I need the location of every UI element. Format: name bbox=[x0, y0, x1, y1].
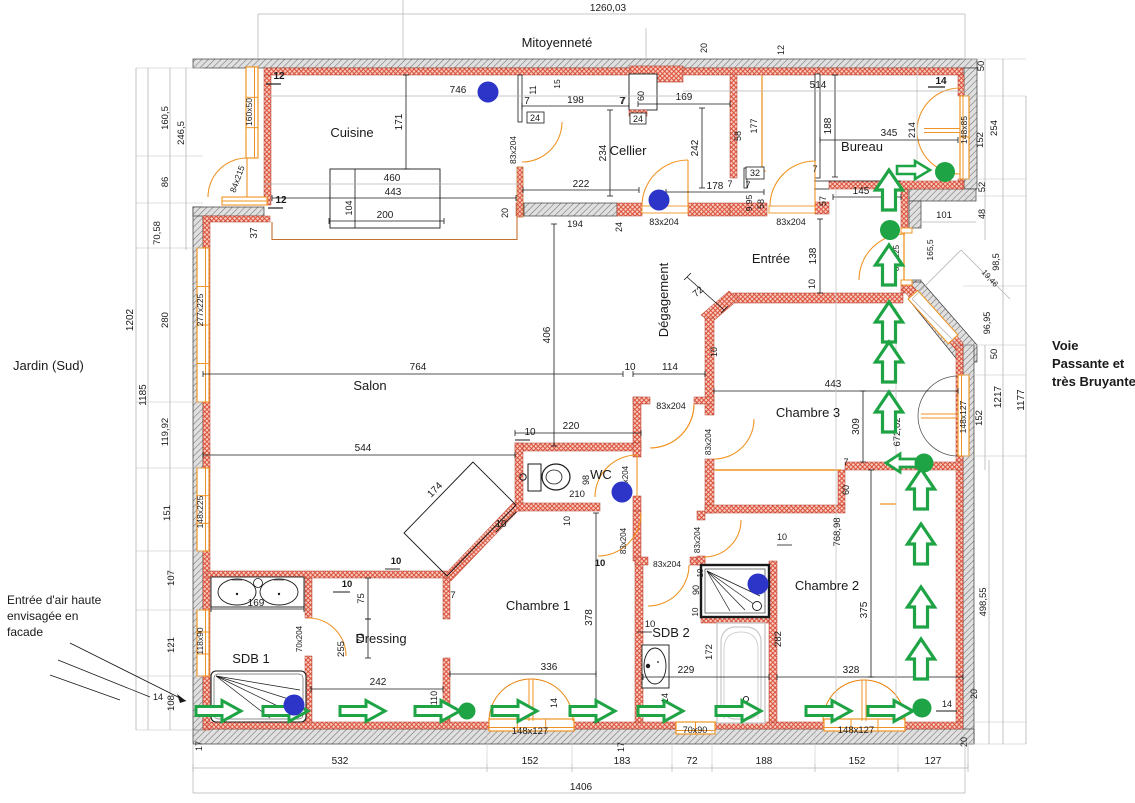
svg-text:7: 7 bbox=[619, 96, 625, 107]
svg-text:514: 514 bbox=[810, 80, 827, 91]
svg-text:90: 90 bbox=[691, 585, 701, 595]
svg-text:12: 12 bbox=[273, 71, 285, 82]
svg-text:282: 282 bbox=[773, 631, 784, 647]
svg-text:222: 222 bbox=[573, 179, 590, 190]
svg-text:20: 20 bbox=[500, 208, 510, 218]
svg-text:764: 764 bbox=[410, 362, 427, 373]
svg-text:10: 10 bbox=[807, 279, 817, 289]
svg-text:20: 20 bbox=[699, 43, 709, 53]
svg-text:148x225: 148x225 bbox=[195, 495, 205, 528]
svg-text:200: 200 bbox=[377, 210, 394, 221]
svg-text:177: 177 bbox=[749, 118, 759, 133]
svg-text:72: 72 bbox=[686, 756, 698, 767]
svg-text:Chambre 3: Chambre 3 bbox=[776, 405, 840, 420]
svg-text:309: 309 bbox=[851, 418, 862, 435]
svg-text:50: 50 bbox=[976, 61, 987, 72]
svg-text:152: 152 bbox=[522, 756, 539, 767]
svg-text:119,92: 119,92 bbox=[160, 418, 171, 446]
svg-text:11: 11 bbox=[528, 85, 538, 94]
svg-text:1217: 1217 bbox=[993, 385, 1004, 408]
svg-text:58: 58 bbox=[733, 131, 743, 141]
svg-text:Dressing: Dressing bbox=[355, 631, 406, 646]
svg-text:345: 345 bbox=[881, 128, 898, 139]
svg-text:83x204: 83x204 bbox=[649, 217, 679, 227]
svg-text:188: 188 bbox=[823, 117, 834, 134]
svg-text:7: 7 bbox=[727, 179, 732, 189]
svg-text:375: 375 bbox=[859, 601, 870, 618]
svg-text:198: 198 bbox=[567, 95, 584, 106]
svg-text:58: 58 bbox=[756, 199, 766, 209]
svg-text:10: 10 bbox=[595, 558, 606, 569]
svg-text:254: 254 bbox=[989, 120, 1000, 136]
svg-text:214: 214 bbox=[907, 122, 918, 138]
svg-text:10: 10 bbox=[696, 568, 705, 577]
svg-text:114: 114 bbox=[662, 362, 678, 373]
svg-text:10: 10 bbox=[777, 532, 787, 542]
svg-text:210: 210 bbox=[569, 489, 585, 500]
svg-text:83x204: 83x204 bbox=[656, 401, 686, 411]
svg-text:83x204: 83x204 bbox=[619, 527, 628, 554]
svg-text:406: 406 bbox=[542, 326, 553, 343]
svg-text:1406: 1406 bbox=[570, 782, 593, 793]
svg-text:1177: 1177 bbox=[1016, 389, 1027, 411]
svg-text:12: 12 bbox=[275, 195, 287, 206]
svg-text:220: 220 bbox=[563, 421, 580, 432]
svg-text:194: 194 bbox=[567, 219, 583, 230]
svg-text:7: 7 bbox=[812, 164, 817, 174]
svg-text:152: 152 bbox=[974, 410, 985, 426]
svg-text:746: 746 bbox=[450, 85, 467, 96]
svg-text:1260,03: 1260,03 bbox=[590, 3, 627, 14]
svg-text:9,95: 9,95 bbox=[744, 194, 754, 211]
svg-text:83x204: 83x204 bbox=[704, 428, 713, 455]
svg-text:443: 443 bbox=[825, 379, 842, 390]
svg-text:160x50: 160x50 bbox=[244, 98, 254, 126]
svg-text:242: 242 bbox=[690, 139, 701, 156]
svg-text:151: 151 bbox=[162, 505, 173, 521]
svg-text:24: 24 bbox=[530, 113, 540, 123]
svg-text:280: 280 bbox=[160, 312, 171, 328]
svg-text:14: 14 bbox=[153, 692, 163, 702]
svg-text:165,5: 165,5 bbox=[925, 239, 935, 261]
svg-text:86: 86 bbox=[160, 177, 171, 188]
svg-text:Cuisine: Cuisine bbox=[330, 125, 373, 140]
svg-text:107: 107 bbox=[166, 570, 177, 586]
svg-text:70,58: 70,58 bbox=[152, 221, 163, 245]
svg-text:172: 172 bbox=[704, 644, 715, 660]
svg-text:Bureau: Bureau bbox=[841, 139, 883, 154]
svg-text:118x90: 118x90 bbox=[195, 627, 205, 655]
svg-text:Jardin (Sud): Jardin (Sud) bbox=[13, 358, 84, 373]
svg-text:14: 14 bbox=[549, 698, 559, 708]
svg-text:10: 10 bbox=[709, 347, 719, 357]
svg-text:188: 188 bbox=[756, 756, 773, 767]
svg-text:Chambre 2: Chambre 2 bbox=[795, 578, 859, 593]
svg-text:152: 152 bbox=[849, 756, 866, 767]
svg-text:145: 145 bbox=[853, 186, 870, 197]
svg-text:24: 24 bbox=[614, 222, 624, 232]
svg-text:Entrée: Entrée bbox=[752, 251, 790, 266]
svg-text:7: 7 bbox=[450, 590, 455, 601]
svg-text:très Bruyante: très Bruyante bbox=[1052, 374, 1135, 389]
svg-text:facade: facade bbox=[7, 625, 43, 639]
svg-text:Mitoyenneté: Mitoyenneté bbox=[522, 35, 593, 50]
svg-text:242: 242 bbox=[370, 677, 387, 688]
svg-text:SDB 1: SDB 1 bbox=[232, 651, 270, 666]
svg-text:104: 104 bbox=[344, 200, 354, 215]
svg-text:127: 127 bbox=[925, 756, 942, 767]
svg-text:20: 20 bbox=[959, 737, 969, 747]
svg-text:169: 169 bbox=[248, 598, 265, 609]
svg-text:498,55: 498,55 bbox=[978, 587, 989, 616]
svg-text:152: 152 bbox=[975, 132, 986, 148]
svg-text:10: 10 bbox=[495, 519, 507, 530]
svg-text:17: 17 bbox=[194, 741, 204, 751]
svg-text:10: 10 bbox=[691, 607, 700, 616]
svg-text:83x204: 83x204 bbox=[508, 136, 518, 164]
svg-text:Entrée d'air haute: Entrée d'air haute bbox=[7, 593, 102, 607]
svg-text:24: 24 bbox=[633, 114, 643, 124]
svg-text:SDB 2: SDB 2 bbox=[652, 625, 690, 640]
svg-text:98,5: 98,5 bbox=[991, 253, 1001, 271]
svg-text:101: 101 bbox=[936, 210, 952, 221]
svg-text:83x204: 83x204 bbox=[653, 559, 681, 569]
svg-text:14: 14 bbox=[942, 699, 952, 709]
svg-text:52: 52 bbox=[977, 182, 988, 193]
svg-text:10: 10 bbox=[342, 579, 353, 590]
svg-text:50: 50 bbox=[989, 349, 1000, 360]
svg-text:Passante et: Passante et bbox=[1052, 356, 1125, 371]
svg-text:7: 7 bbox=[524, 96, 530, 107]
svg-text:20: 20 bbox=[969, 689, 979, 699]
svg-text:10: 10 bbox=[624, 362, 636, 373]
svg-text:544: 544 bbox=[355, 443, 372, 454]
svg-text:148x85: 148x85 bbox=[959, 116, 969, 144]
svg-text:75: 75 bbox=[356, 593, 367, 604]
svg-text:234: 234 bbox=[598, 144, 609, 161]
svg-text:768,98: 768,98 bbox=[832, 517, 843, 546]
svg-text:443: 443 bbox=[385, 187, 402, 198]
svg-text:336: 336 bbox=[541, 662, 558, 673]
svg-text:160,5: 160,5 bbox=[160, 106, 171, 130]
svg-text:10: 10 bbox=[391, 556, 402, 567]
svg-text:378: 378 bbox=[584, 609, 595, 626]
svg-text:183: 183 bbox=[614, 756, 631, 767]
svg-text:7: 7 bbox=[745, 180, 750, 190]
svg-text:246,5: 246,5 bbox=[176, 121, 187, 145]
svg-text:255: 255 bbox=[336, 641, 347, 657]
svg-text:110: 110 bbox=[429, 691, 439, 705]
svg-text:121: 121 bbox=[166, 637, 177, 653]
svg-text:57: 57 bbox=[818, 196, 828, 206]
svg-text:532: 532 bbox=[332, 756, 349, 767]
svg-text:10: 10 bbox=[524, 427, 536, 438]
svg-text:14: 14 bbox=[935, 76, 947, 87]
svg-text:7: 7 bbox=[843, 457, 848, 467]
svg-text:460: 460 bbox=[384, 173, 401, 184]
svg-text:83x204: 83x204 bbox=[776, 217, 806, 227]
svg-text:148x127: 148x127 bbox=[512, 726, 548, 737]
svg-text:70x204: 70x204 bbox=[295, 625, 304, 652]
svg-text:envisagée en: envisagée en bbox=[7, 609, 78, 623]
svg-text:48: 48 bbox=[977, 209, 987, 219]
svg-text:10: 10 bbox=[562, 516, 572, 526]
svg-text:108: 108 bbox=[166, 695, 177, 711]
svg-text:15: 15 bbox=[552, 79, 562, 89]
svg-text:1185: 1185 bbox=[138, 384, 149, 406]
svg-text:229: 229 bbox=[678, 665, 695, 676]
svg-text:70x90: 70x90 bbox=[683, 725, 708, 735]
svg-text:96,95: 96,95 bbox=[982, 312, 992, 335]
svg-text:148x127: 148x127 bbox=[958, 400, 968, 433]
svg-text:Cellier: Cellier bbox=[610, 143, 648, 158]
svg-text:60: 60 bbox=[841, 485, 851, 495]
svg-text:277x225: 277x225 bbox=[195, 293, 205, 326]
svg-text:171: 171 bbox=[394, 113, 405, 130]
svg-text:WC: WC bbox=[590, 467, 612, 482]
svg-text:138: 138 bbox=[808, 247, 819, 264]
svg-text:Chambre 1: Chambre 1 bbox=[506, 598, 570, 613]
svg-text:32: 32 bbox=[750, 168, 760, 178]
svg-text:169: 169 bbox=[676, 92, 693, 103]
svg-text:83x204: 83x204 bbox=[693, 526, 702, 553]
svg-text:328: 328 bbox=[843, 665, 860, 676]
svg-text:37: 37 bbox=[249, 227, 260, 239]
svg-text:1202: 1202 bbox=[125, 308, 136, 331]
svg-text:178: 178 bbox=[707, 181, 724, 192]
svg-text:17: 17 bbox=[616, 742, 626, 752]
svg-text:12: 12 bbox=[776, 45, 786, 55]
svg-text:Voie: Voie bbox=[1052, 338, 1079, 353]
svg-text:148x127: 148x127 bbox=[838, 725, 874, 736]
svg-text:Dégagement: Dégagement bbox=[656, 262, 671, 337]
svg-text:Salon: Salon bbox=[353, 378, 386, 393]
